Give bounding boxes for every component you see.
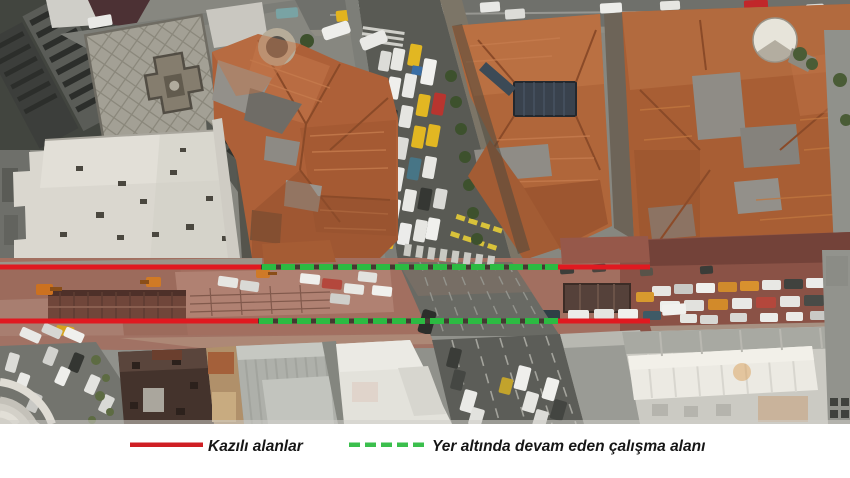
- svg-text:Kazılı alanlar: Kazılı alanlar: [208, 438, 304, 455]
- svg-text:Yer altında devam eden çalışma: Yer altında devam eden çalışma alanı: [432, 438, 705, 455]
